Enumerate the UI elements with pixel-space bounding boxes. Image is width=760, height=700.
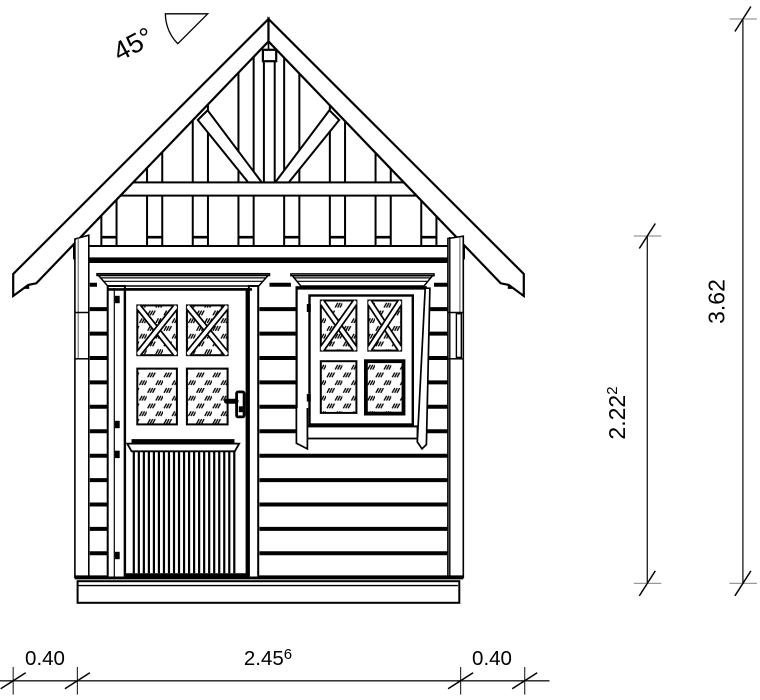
svg-text:0.40: 0.40 bbox=[472, 647, 512, 670]
svg-text:0.40: 0.40 bbox=[25, 647, 65, 670]
svg-text:3.62: 3.62 bbox=[704, 279, 730, 324]
